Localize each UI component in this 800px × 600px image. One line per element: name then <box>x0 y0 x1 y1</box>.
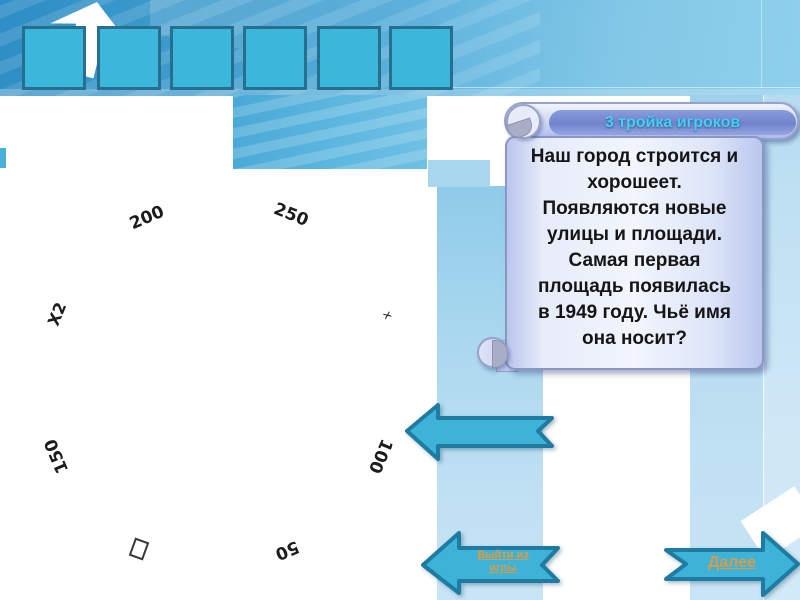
next-button[interactable]: Далее <box>658 528 800 598</box>
wheel-label-200: 200 <box>127 202 167 234</box>
left-edge-sliver-decoration <box>0 148 6 168</box>
wheel-label-50: 50 <box>272 536 302 564</box>
wheel-label-250: 250 <box>271 199 311 231</box>
wheel-label-100: 100 <box>364 436 396 476</box>
slide: 200 250 X2 x 150 100 50 3 тройка игроков… <box>0 0 800 600</box>
score-square-6 <box>389 26 453 90</box>
wheel-label-x: x <box>380 309 396 321</box>
faint-horizontal-line <box>440 87 800 88</box>
wheel-label-150: 150 <box>41 436 73 476</box>
background-block-decoration <box>428 160 490 187</box>
exit-game-button[interactable]: Выйти из игры <box>415 528 565 598</box>
exit-game-label: Выйти из игры <box>458 549 548 575</box>
wheel-label-x2: X2 <box>44 300 70 329</box>
score-square-2 <box>97 26 161 90</box>
next-label: Далее <box>692 554 772 573</box>
score-square-5 <box>317 26 381 90</box>
score-square-4 <box>243 26 307 90</box>
wheel-blank-square-marker <box>129 538 150 561</box>
score-square-1 <box>22 26 86 90</box>
question-card-header: 3 тройка игроков <box>549 110 796 135</box>
question-text: Наш город строится и хорошеет. Появляютс… <box>508 144 761 366</box>
rays-block-decoration <box>233 95 427 169</box>
faint-vertical-line <box>761 0 762 88</box>
big-left-arrow-button[interactable] <box>395 403 560 463</box>
score-square-3 <box>170 26 234 90</box>
